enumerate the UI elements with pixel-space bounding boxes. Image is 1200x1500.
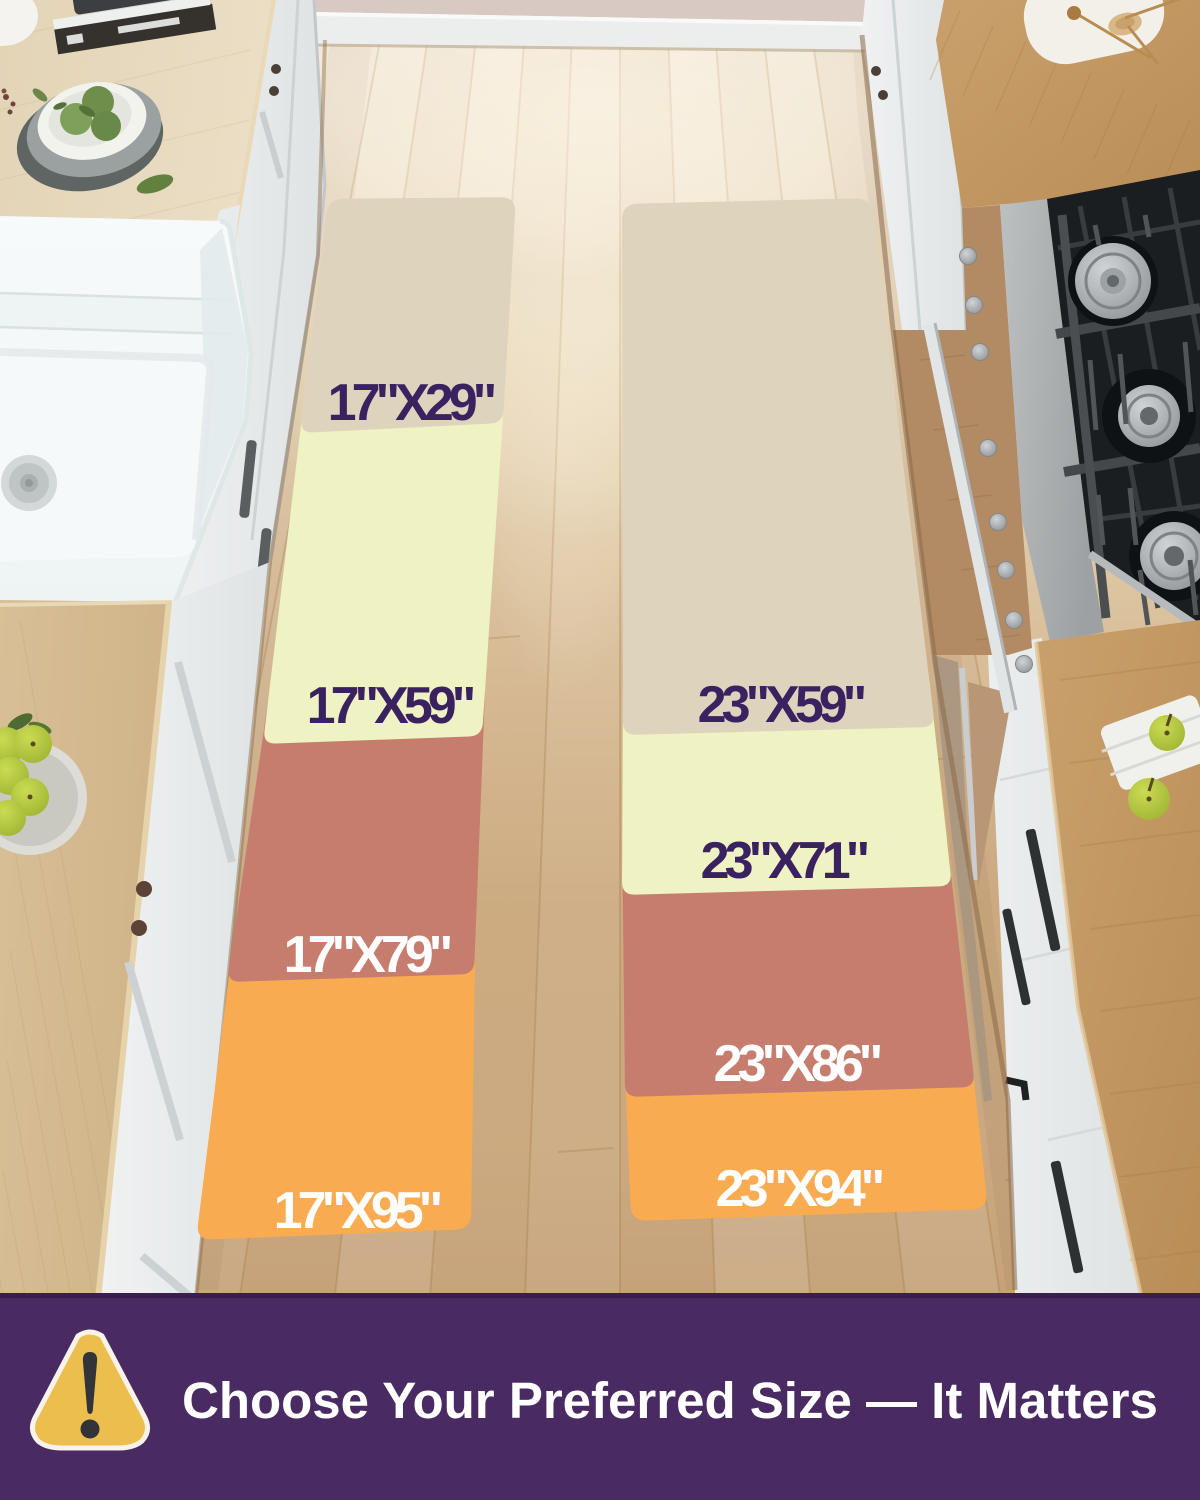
svg-text:17"X79": 17"X79" [284, 926, 451, 984]
svg-text:23"X86": 23"X86" [714, 1035, 881, 1093]
svg-text:17"X59": 17"X59" [307, 677, 474, 735]
svg-text:23"X71": 23"X71" [701, 832, 868, 890]
svg-text:23"X59": 23"X59" [698, 676, 865, 734]
svg-text:23"X94": 23"X94" [716, 1160, 883, 1218]
svg-text:17"X95": 17"X95" [274, 1182, 441, 1240]
svg-text:Choose Your Preferred Size — I: Choose Your Preferred Size — It Matters [182, 1372, 1158, 1429]
svg-text:17"X29": 17"X29" [328, 374, 495, 432]
